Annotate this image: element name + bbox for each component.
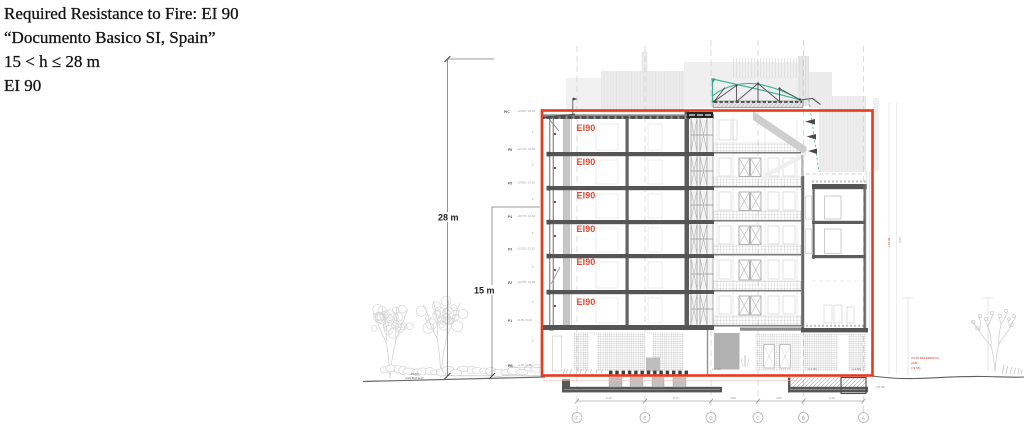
svg-text:+26.80 \ 26.45: +26.80 \ 26.45 — [517, 109, 535, 113]
svg-text:+19.95 \ 19.60: +19.95 \ 19.60 — [517, 181, 535, 185]
svg-text:9.05: 9.05 — [898, 237, 902, 243]
svg-text:(74.20): (74.20) — [808, 367, 817, 371]
svg-text:+24.30: +24.30 — [887, 237, 891, 247]
svg-text:P3: P3 — [508, 248, 512, 252]
svg-text:28 m: 28 m — [438, 213, 459, 223]
svg-text:CAN BATLLO: CAN BATLLO — [405, 376, 424, 380]
svg-text:EI90: EI90 — [577, 224, 596, 234]
svg-text:5.10: 5.10 — [606, 396, 612, 400]
svg-text:5.40: 5.40 — [829, 396, 835, 400]
svg-text:P2: P2 — [508, 281, 512, 285]
svg-text:5: 5 — [532, 339, 534, 343]
svg-text:EI90: EI90 — [577, 297, 596, 307]
svg-text:5: 5 — [532, 197, 534, 201]
svg-text:EI90: EI90 — [577, 157, 596, 167]
svg-text:+13.55 \ 13.20: +13.55 \ 13.20 — [517, 247, 535, 251]
svg-text:15 m: 15 m — [474, 286, 495, 296]
svg-text:COTA REFERENCIA: COTA REFERENCIA — [911, 356, 939, 360]
svg-text:5: 5 — [532, 163, 534, 167]
svg-text:EI90: EI90 — [577, 191, 596, 201]
svg-text:5: 5 — [532, 265, 534, 269]
svg-text:F: F — [575, 416, 578, 421]
svg-text:(73.05): (73.05) — [876, 385, 885, 389]
svg-text:(74.58): (74.58) — [911, 366, 921, 370]
svg-text:PIC: PIC — [504, 110, 510, 114]
svg-text:P5: P5 — [508, 182, 512, 186]
svg-text:5.10: 5.10 — [673, 396, 679, 400]
svg-text:(+4.88): (+4.88) — [852, 367, 861, 371]
svg-text:4.05: 4.05 — [730, 396, 736, 400]
svg-text:5: 5 — [532, 130, 534, 134]
svg-text:E: E — [643, 416, 646, 421]
svg-text:4.05: 4.05 — [776, 396, 782, 400]
svg-text:+1.20 \ 0.85: +1.20 \ 0.85 — [517, 363, 532, 367]
svg-text:P4: P4 — [508, 215, 512, 219]
svg-text:+23.15 \ 22.80: +23.15 \ 22.80 — [517, 147, 535, 151]
svg-text:AMB: AMB — [911, 361, 918, 365]
svg-text:+10.35 \ 10.00: +10.35 \ 10.00 — [517, 280, 535, 284]
svg-text:5: 5 — [532, 300, 534, 304]
svg-text:P6: P6 — [508, 148, 512, 152]
svg-text:P1: P1 — [508, 319, 512, 323]
svg-text:A: A — [862, 416, 866, 421]
svg-text:EI90: EI90 — [577, 257, 596, 267]
svg-text:PB: PB — [508, 364, 513, 368]
svg-text:+16.75 \ 16.40: +16.75 \ 16.40 — [517, 214, 535, 218]
svg-text:(+4.20): (+4.20) — [712, 367, 721, 371]
svg-text:B: B — [802, 416, 805, 421]
svg-text:+6.55 \ 6.20: +6.55 \ 6.20 — [517, 318, 532, 322]
svg-text:C: C — [756, 416, 760, 421]
svg-text:EI90: EI90 — [577, 123, 596, 133]
svg-text:5: 5 — [532, 231, 534, 235]
svg-text:D: D — [709, 416, 713, 421]
